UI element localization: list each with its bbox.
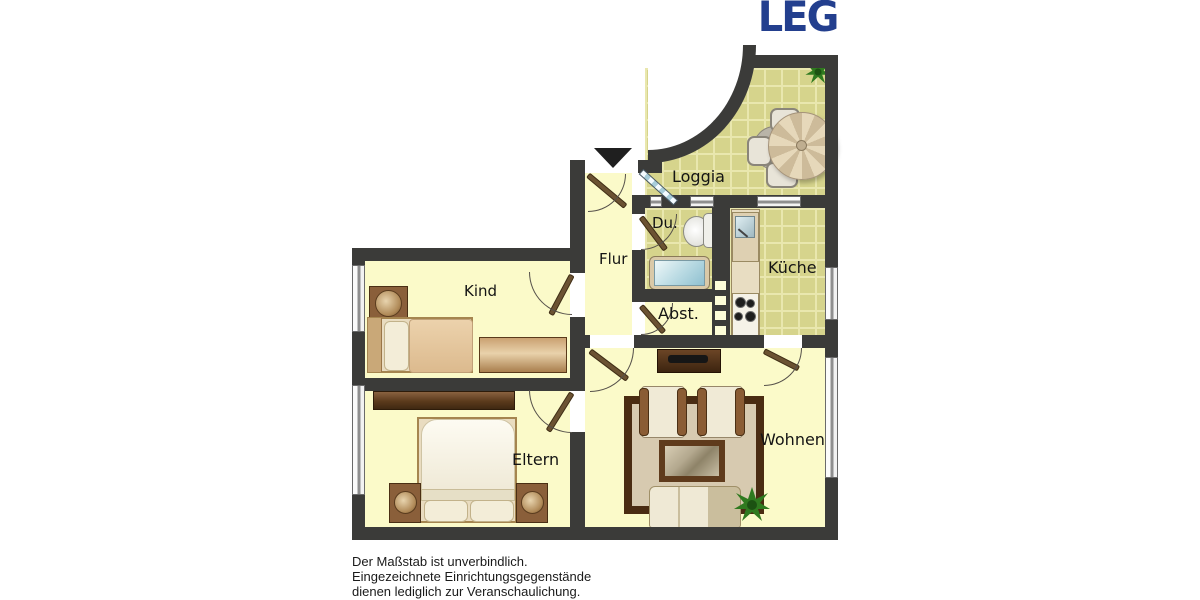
window-kueche bbox=[825, 267, 838, 320]
stove-burner bbox=[746, 299, 755, 308]
wall-flur-left-upper bbox=[570, 160, 585, 273]
window-loggia-du bbox=[690, 196, 714, 207]
kind-duvet bbox=[409, 319, 473, 373]
room-label-kueche: Küche bbox=[768, 258, 817, 277]
coffee-table bbox=[659, 440, 725, 482]
wall-kueche-bottom-c bbox=[802, 335, 838, 348]
loggia-parasol-hub bbox=[796, 140, 807, 151]
eltern-pillow-left bbox=[424, 500, 468, 522]
room-label-loggia: Loggia bbox=[672, 167, 725, 186]
kind-lamp bbox=[375, 290, 402, 317]
shelf-notch bbox=[715, 311, 726, 320]
room-label-flur: Flur bbox=[599, 250, 627, 268]
window-loggia-kueche bbox=[757, 196, 801, 207]
kind-bed-headboard bbox=[368, 318, 382, 372]
wall-eltern-wohnen bbox=[570, 432, 585, 527]
eltern-lamp-right bbox=[521, 491, 544, 514]
entrance-arrow-icon bbox=[594, 148, 632, 168]
room-label-kind: Kind bbox=[464, 282, 497, 300]
shelf-notch bbox=[715, 296, 726, 305]
room-label-eltern: Eltern bbox=[512, 450, 559, 469]
window-wohnen bbox=[825, 357, 838, 478]
kind-pillow bbox=[384, 321, 409, 371]
disclaimer-line: Eingezeichnete Einrichtungsgegenstände bbox=[352, 569, 591, 584]
wohnen-plant-icon bbox=[731, 485, 773, 525]
wall-kind-top bbox=[352, 248, 580, 261]
leg-logo: LEG bbox=[743, 0, 838, 41]
shelf-notch bbox=[715, 281, 726, 290]
window-kind bbox=[352, 265, 365, 332]
eltern-pillow-right bbox=[470, 500, 514, 522]
wall-loggia-top bbox=[748, 55, 838, 68]
wall-loggia-bottom bbox=[632, 195, 838, 208]
eltern-wardrobe bbox=[373, 391, 515, 410]
disclaimer-line: Der Maßstab ist unverbindlich. bbox=[352, 554, 591, 569]
armchair-arm bbox=[639, 388, 649, 436]
eltern-lamp-left bbox=[394, 491, 417, 514]
eltern-duvet bbox=[421, 419, 515, 493]
wall-flur-bottom-b bbox=[634, 335, 764, 348]
room-label-abstellraum: Abst. bbox=[658, 304, 699, 323]
shelf-notch bbox=[715, 326, 726, 335]
stove-burner bbox=[745, 311, 756, 322]
stove-burner bbox=[734, 312, 743, 321]
armchair-arm bbox=[735, 388, 745, 436]
wall-kind-flur-lower bbox=[570, 317, 585, 391]
wohnen-sofa bbox=[649, 486, 741, 528]
room-label-dusche: Du. bbox=[652, 214, 678, 232]
wall-flur-bottom-a bbox=[570, 335, 590, 348]
wall-du-abst bbox=[632, 289, 713, 302]
armchair-arm bbox=[677, 388, 687, 436]
shower-tray bbox=[654, 260, 705, 286]
window-eltern bbox=[352, 385, 365, 495]
window-loggia-du-small bbox=[650, 196, 662, 207]
armchair-arm bbox=[697, 388, 707, 436]
disclaimer-line: dienen lediglich zur Veranschaulichung. bbox=[352, 584, 591, 599]
room-label-wohnen: Wohnen bbox=[760, 430, 825, 449]
kind-sideboard bbox=[479, 337, 567, 373]
stove-burner bbox=[735, 297, 746, 308]
wall-bottom-outer bbox=[352, 527, 838, 540]
tv-icon bbox=[668, 355, 708, 363]
disclaimer-text: Der Maßstab ist unverbindlich. Eingezeic… bbox=[352, 554, 591, 599]
floor-plan-page: LEG bbox=[0, 0, 1200, 600]
